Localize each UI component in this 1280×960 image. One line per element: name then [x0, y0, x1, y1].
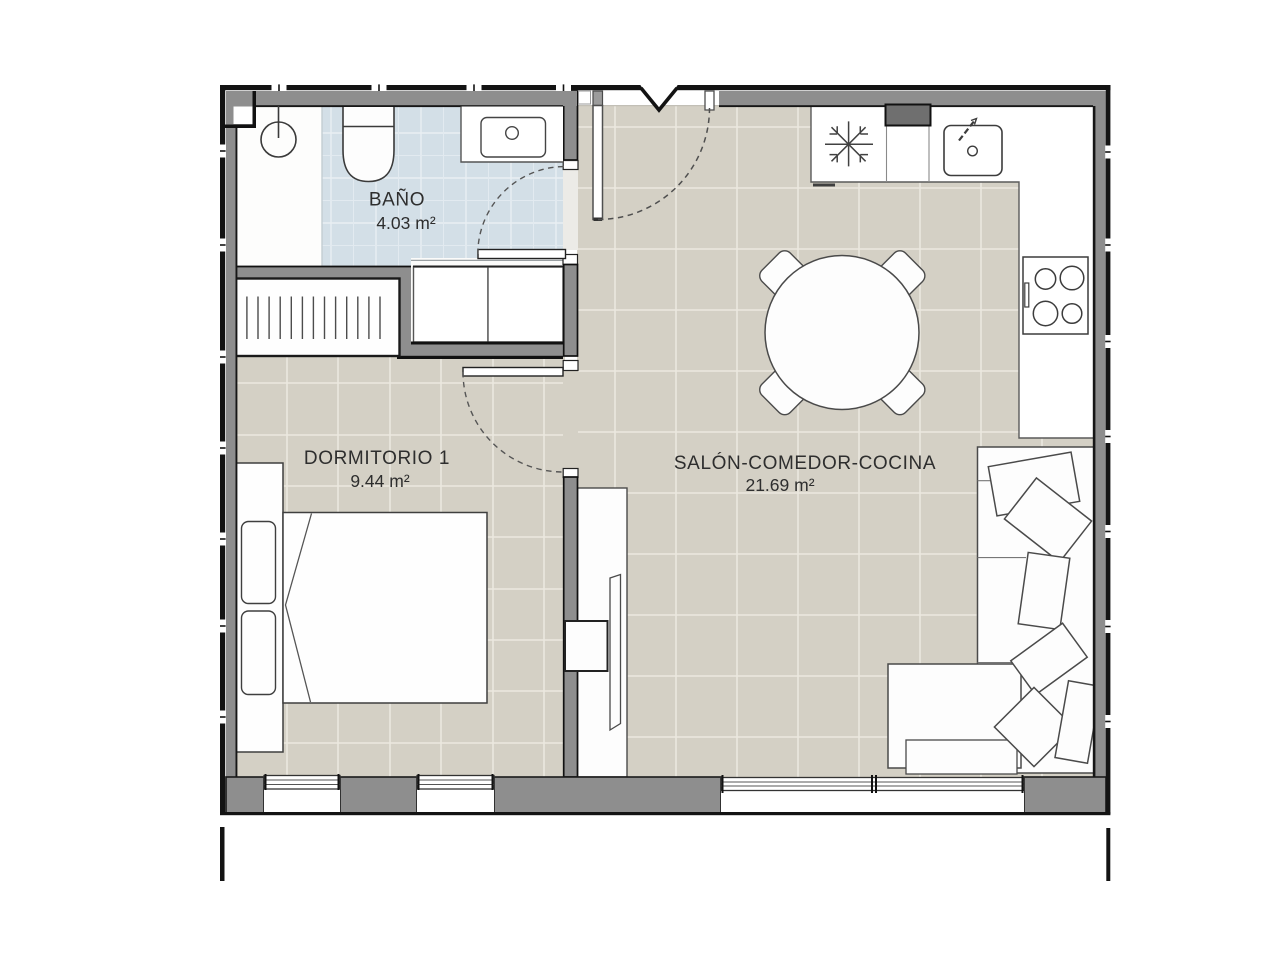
svg-text:21.69 m²: 21.69 m² — [745, 475, 814, 495]
svg-text:BAÑO: BAÑO — [369, 189, 425, 211]
svg-text:9.44 m²: 9.44 m² — [350, 471, 409, 491]
svg-text:4.03 m²: 4.03 m² — [376, 213, 435, 233]
svg-text:SALÓN-COMEDOR-COCINA: SALÓN-COMEDOR-COCINA — [674, 452, 936, 474]
svg-text:DORMITORIO 1: DORMITORIO 1 — [304, 448, 450, 469]
